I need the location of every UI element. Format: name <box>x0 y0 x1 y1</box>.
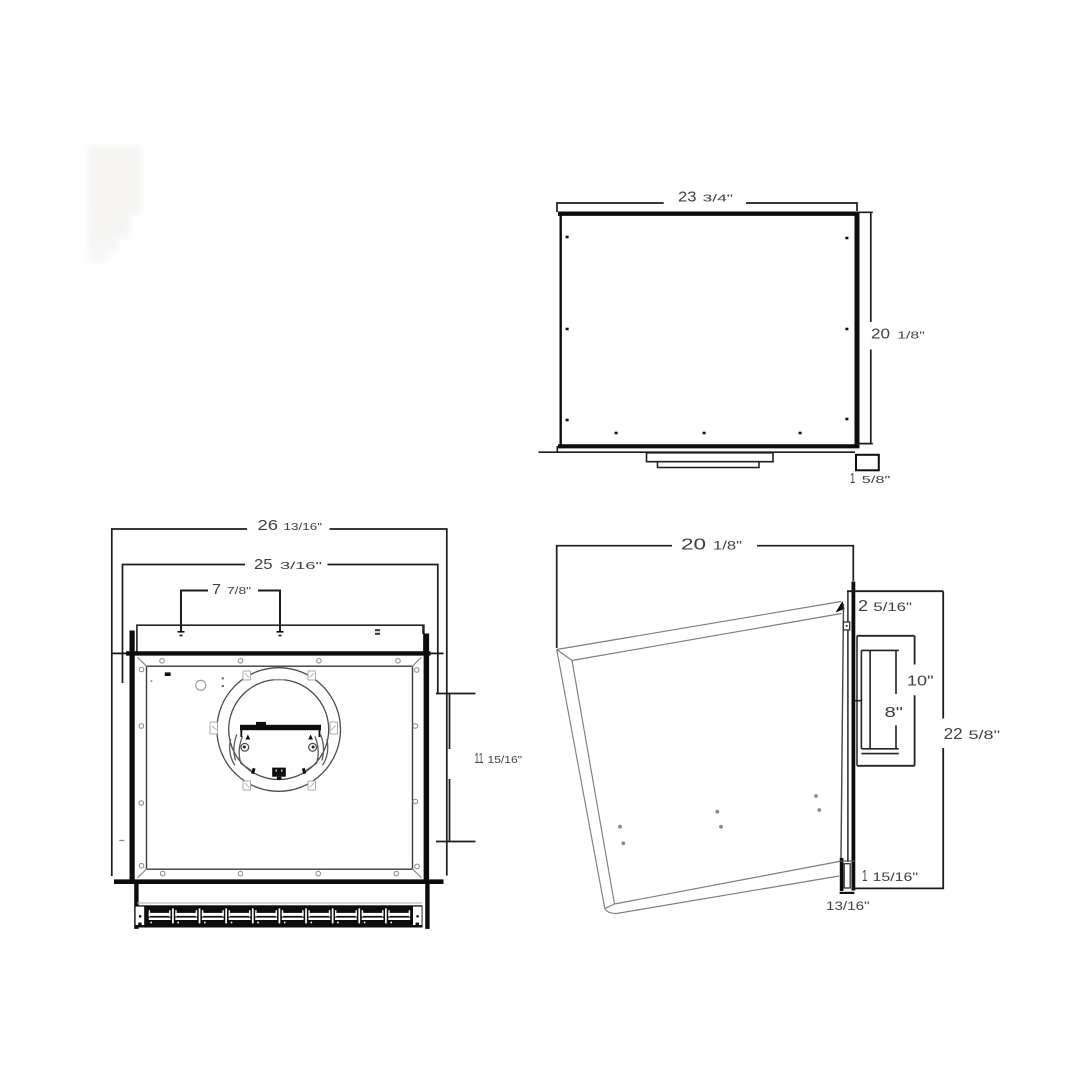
svg-text:11: 11 <box>475 751 484 767</box>
svg-text:15/16": 15/16" <box>873 870 919 884</box>
svg-text:26: 26 <box>258 517 279 534</box>
svg-text:1/8": 1/8" <box>713 541 742 553</box>
svg-text:7: 7 <box>212 581 221 598</box>
svg-text:8": 8" <box>885 705 904 721</box>
svg-text:3/16": 3/16" <box>280 560 322 572</box>
svg-text:13/16": 13/16" <box>826 901 870 913</box>
svg-text:22: 22 <box>944 726 963 743</box>
svg-text:1/8": 1/8" <box>897 330 925 342</box>
svg-text:2: 2 <box>858 598 868 615</box>
svg-text:5/16": 5/16" <box>873 602 912 614</box>
svg-text:3/4": 3/4" <box>703 193 734 205</box>
svg-text:15/16": 15/16" <box>488 754 523 766</box>
svg-text:1: 1 <box>862 868 868 885</box>
svg-text:5/8": 5/8" <box>862 474 891 486</box>
svg-text:1: 1 <box>850 471 855 487</box>
svg-text:10": 10" <box>907 674 934 690</box>
svg-text:20: 20 <box>871 327 890 343</box>
svg-text:25: 25 <box>254 556 273 573</box>
svg-text:13/16": 13/16" <box>284 521 323 533</box>
svg-text:23: 23 <box>678 190 697 206</box>
svg-text:7/8": 7/8" <box>227 585 251 597</box>
svg-text:20: 20 <box>681 537 706 554</box>
svg-text:5/8": 5/8" <box>969 730 1001 742</box>
